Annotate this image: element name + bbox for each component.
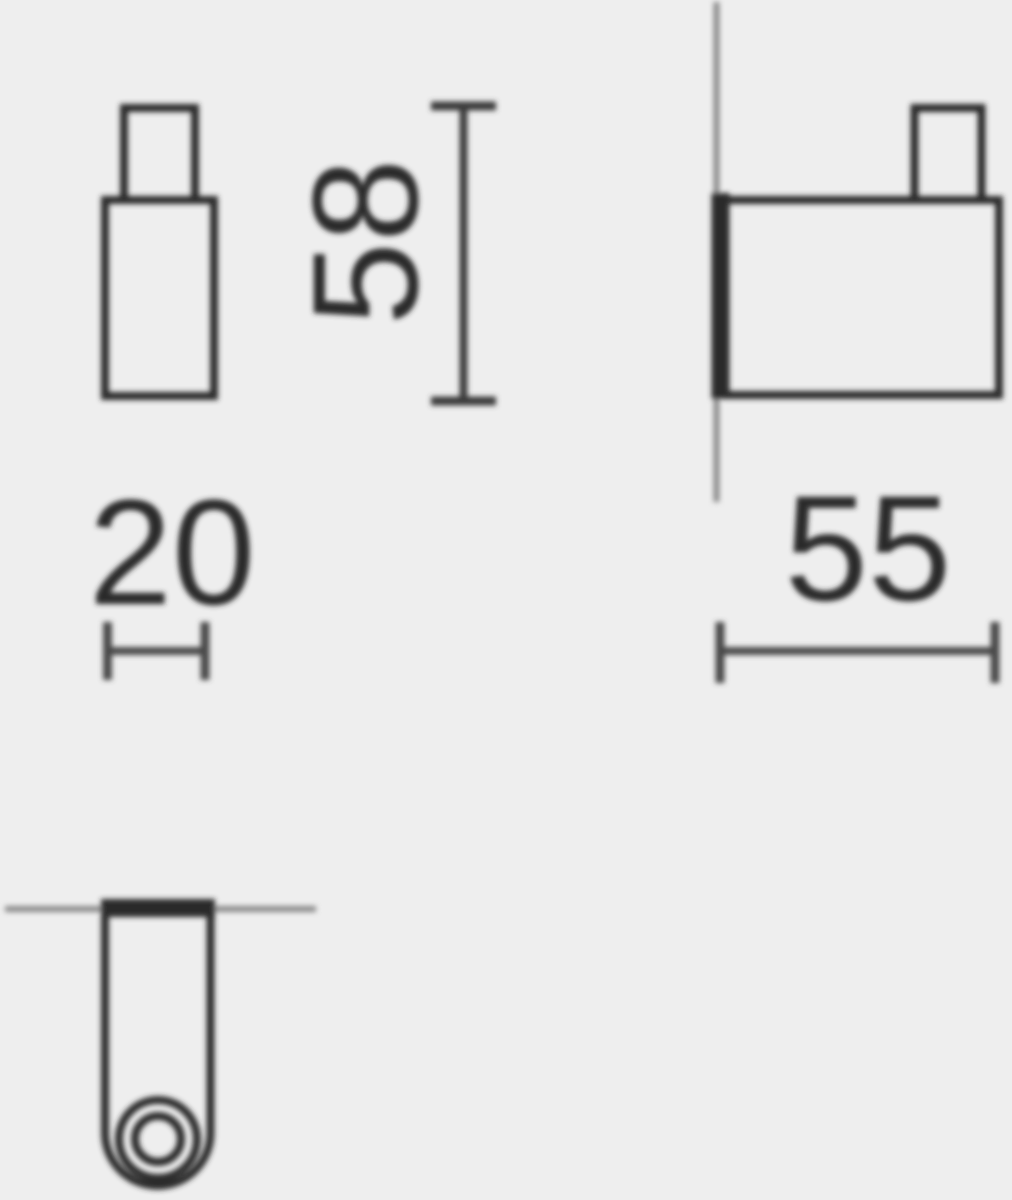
svg-text:58: 58 [281,159,449,326]
svg-text:55: 55 [785,464,952,632]
svg-text:20: 20 [89,468,256,636]
